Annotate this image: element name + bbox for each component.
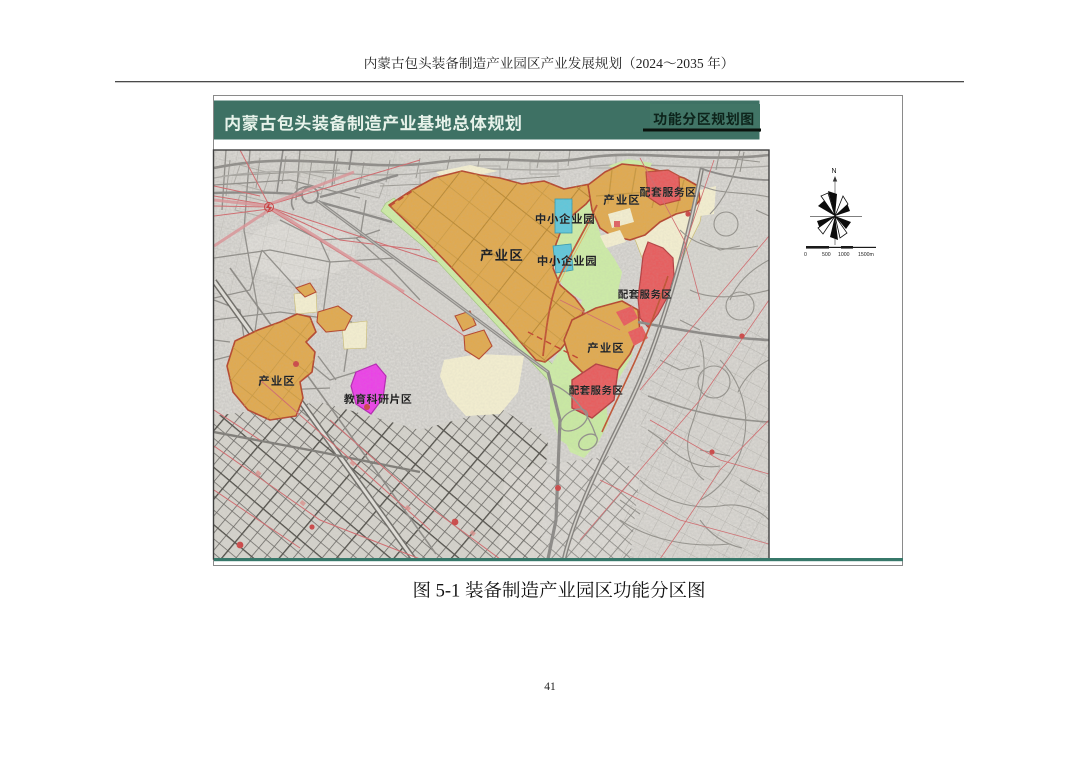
svg-text:2024: 2024 bbox=[636, 56, 663, 71]
svg-text:1000: 1000 bbox=[838, 252, 850, 258]
svg-text:2035: 2035 bbox=[677, 56, 708, 71]
svg-text:500: 500 bbox=[822, 252, 831, 258]
svg-text:N: N bbox=[832, 168, 837, 175]
svg-text:41: 41 bbox=[544, 681, 556, 693]
svg-text:0: 0 bbox=[804, 252, 807, 258]
svg-text:5-1: 5-1 bbox=[431, 582, 465, 602]
svg-text:1500m: 1500m bbox=[858, 252, 874, 258]
